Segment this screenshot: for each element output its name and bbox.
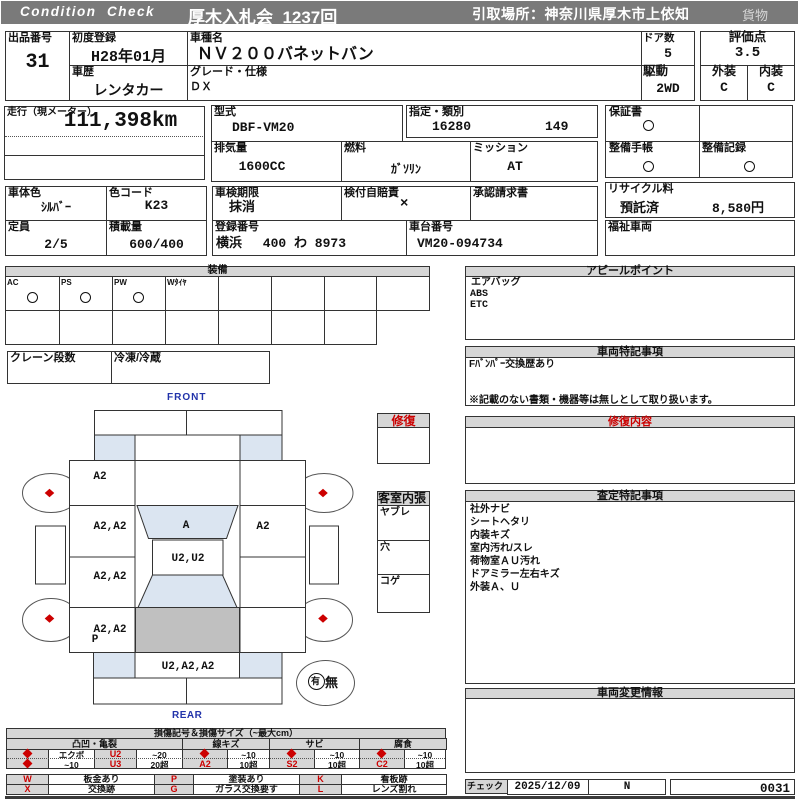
svg-text:A2: A2 (93, 471, 106, 483)
svg-text:U2,U2: U2,U2 (171, 553, 204, 565)
svg-text:A: A (183, 520, 190, 532)
svg-text:A2,A2: A2,A2 (93, 571, 126, 583)
svg-text:U2,A2,A2: U2,A2,A2 (162, 661, 215, 673)
svg-text:A2: A2 (256, 521, 269, 533)
svg-text:P: P (92, 634, 99, 646)
svg-text:A2,A2: A2,A2 (93, 624, 126, 636)
svg-text:A2,A2: A2,A2 (93, 521, 126, 533)
